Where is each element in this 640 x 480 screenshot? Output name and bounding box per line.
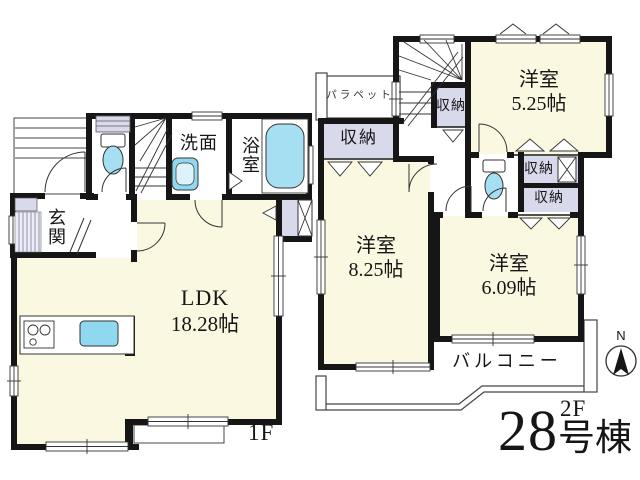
porch-steps bbox=[14, 118, 88, 194]
ldk-size: 18.28帖 bbox=[130, 312, 280, 338]
north-label: N bbox=[615, 328, 627, 344]
genkan-floor bbox=[15, 198, 41, 252]
pipe-space-2f bbox=[558, 157, 576, 182]
building-suffix: 号棟 bbox=[558, 420, 632, 457]
room-label-bath: 浴室 bbox=[238, 127, 260, 183]
window-chevrons bbox=[500, 24, 569, 34]
toilet-icon-2f bbox=[483, 160, 505, 199]
room-label-609: 洋室 6.09帖 bbox=[449, 252, 569, 301]
room-label-ldk: LDK 18.28帖 bbox=[130, 285, 280, 337]
room-525-name: 洋室 bbox=[478, 68, 600, 92]
north-arrow-icon bbox=[606, 346, 636, 376]
room-525-size: 5.25帖 bbox=[478, 92, 600, 116]
balcony-label: バルコニー bbox=[436, 351, 578, 373]
room-609-size: 6.09帖 bbox=[449, 276, 569, 300]
washbasin-icon bbox=[172, 158, 198, 190]
closet-label-b: 収納 bbox=[530, 190, 568, 207]
closet-label-a: 収納 bbox=[520, 161, 558, 178]
room-label-genkan: 玄関 bbox=[44, 204, 66, 250]
floor-label-1f: 1F bbox=[248, 419, 274, 447]
building-title: 28 号棟 bbox=[498, 402, 632, 460]
genkan-step-lines bbox=[70, 218, 91, 254]
terrace-outline bbox=[134, 425, 224, 443]
room-609-name: 洋室 bbox=[449, 252, 569, 276]
toilet-icon-1f bbox=[96, 116, 130, 174]
ldk-name: LDK bbox=[130, 285, 280, 312]
building-number: 28 bbox=[498, 402, 558, 460]
bathtub-icon bbox=[262, 119, 308, 193]
closet-label-wing: 収納 bbox=[324, 128, 394, 149]
floorplan-canvas: 洗面 浴室 玄関 LDK 18.28帖 1F パラペット 収納 収納 洋室 5.… bbox=[0, 0, 640, 480]
kitchen-icon bbox=[20, 316, 134, 354]
parapet-label: パラペット bbox=[321, 90, 399, 103]
room-label-825: 洋室 8.25帖 bbox=[316, 234, 436, 283]
closet-label-stairs: 収納 bbox=[431, 98, 471, 115]
room-825-name: 洋室 bbox=[316, 234, 436, 258]
room-label-525: 洋室 5.25帖 bbox=[478, 68, 600, 117]
room-label-senmen: 洗面 bbox=[173, 133, 225, 155]
room-825-size: 8.25帖 bbox=[316, 258, 436, 282]
